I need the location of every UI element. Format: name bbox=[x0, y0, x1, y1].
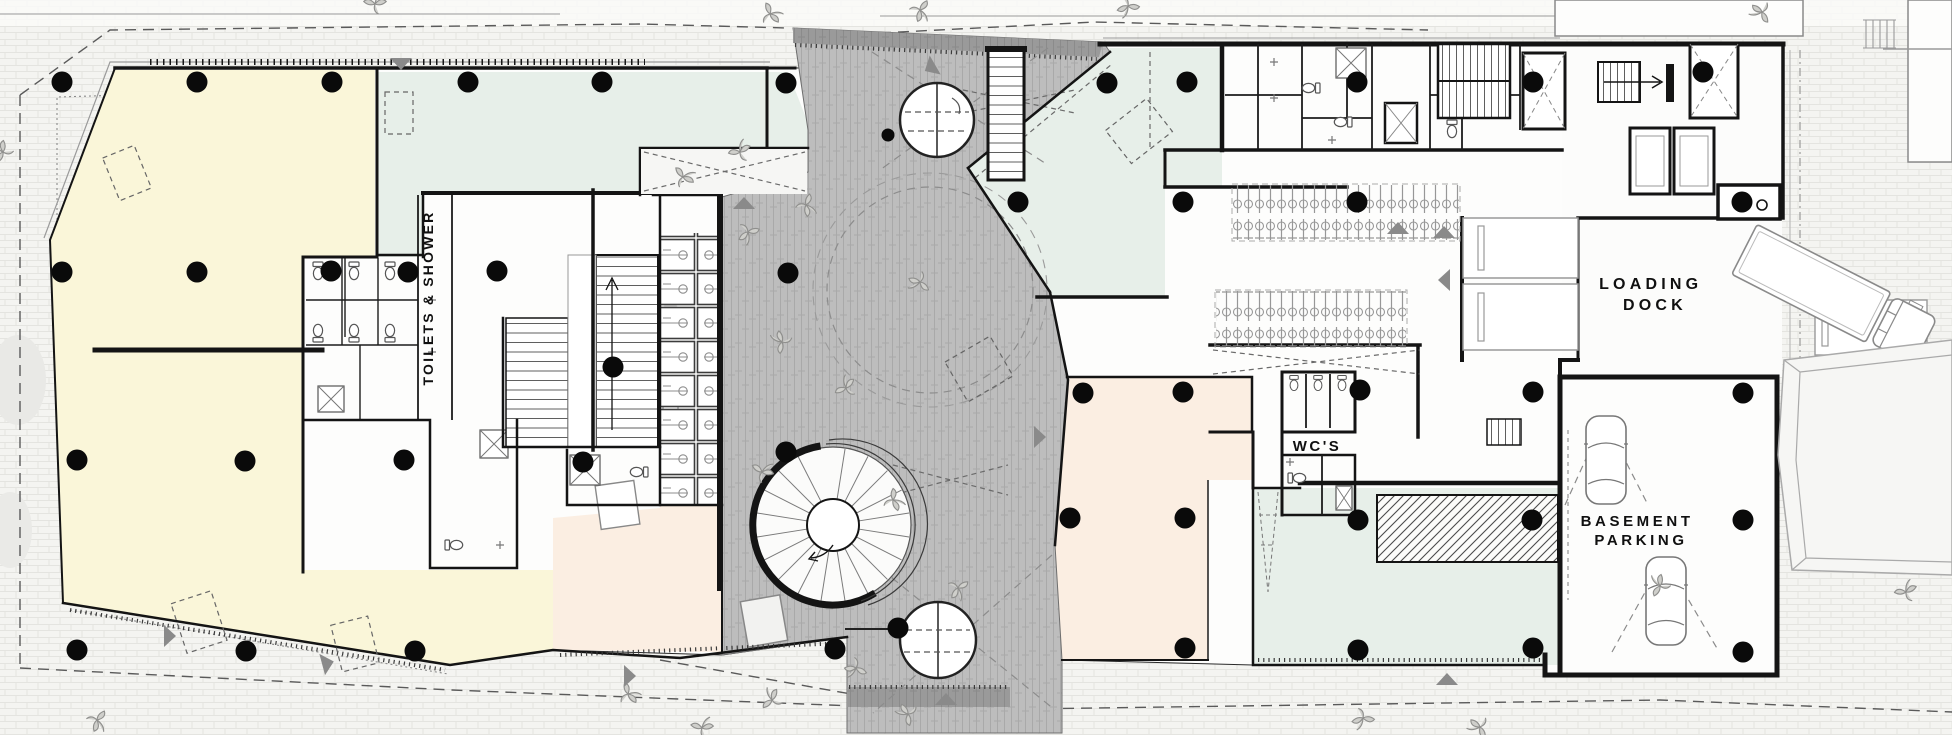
column-dot bbox=[1347, 72, 1368, 93]
label-wcs: WC'S bbox=[1293, 438, 1342, 455]
loading-bay bbox=[1463, 284, 1578, 350]
label-loading: LOADING bbox=[1599, 276, 1702, 293]
column-dot bbox=[398, 262, 419, 283]
column-dot bbox=[1523, 382, 1544, 403]
column-dot bbox=[888, 618, 909, 639]
column-dot bbox=[322, 72, 343, 93]
car bbox=[1584, 416, 1628, 504]
column-dot bbox=[1097, 73, 1118, 94]
column-dot bbox=[1733, 383, 1754, 404]
plaza-pit-cover bbox=[740, 595, 787, 647]
plaza-threshold-band bbox=[847, 687, 1010, 707]
column-dot bbox=[776, 442, 797, 463]
floor-plan-page: LOADING DOCK BASEMENT PARKING bbox=[0, 0, 1952, 735]
column-dot bbox=[405, 641, 426, 662]
column-dot bbox=[67, 640, 88, 661]
adjacent-roof-outline bbox=[1908, 0, 1952, 162]
column-dot bbox=[825, 639, 846, 660]
column-dot bbox=[1175, 508, 1196, 529]
label-dock: DOCK bbox=[1623, 297, 1687, 314]
column-dot bbox=[1175, 638, 1196, 659]
column-dot bbox=[1350, 380, 1371, 401]
column-dot bbox=[52, 72, 73, 93]
column-dot bbox=[1008, 192, 1029, 213]
column-dot bbox=[1732, 192, 1753, 213]
column-dot bbox=[1173, 382, 1194, 403]
column-dot bbox=[321, 261, 342, 282]
column-dot bbox=[1733, 642, 1754, 663]
column-dot bbox=[236, 641, 257, 662]
car-ramp bbox=[1778, 340, 1952, 575]
column-dot bbox=[1348, 640, 1369, 661]
column-dot bbox=[1347, 192, 1368, 213]
label-parking: PARKING bbox=[1594, 532, 1687, 549]
column-dot bbox=[1522, 510, 1543, 531]
vestibule bbox=[641, 149, 807, 194]
stair-north bbox=[988, 50, 1024, 180]
bike-lockers bbox=[661, 233, 719, 505]
column-dot bbox=[235, 451, 256, 472]
column-dot bbox=[776, 73, 797, 94]
column-dot bbox=[487, 261, 508, 282]
column-dot bbox=[1523, 638, 1544, 659]
parking-steps bbox=[1487, 419, 1521, 445]
column-dot-small bbox=[882, 129, 895, 142]
column-dot bbox=[1348, 510, 1369, 531]
loading-bay bbox=[1463, 218, 1578, 278]
column-dot bbox=[52, 262, 73, 283]
column-dot bbox=[1173, 192, 1194, 213]
label-basement: BASEMENT bbox=[1581, 513, 1694, 530]
column-dot bbox=[603, 357, 624, 378]
column-dot bbox=[187, 72, 208, 93]
car bbox=[1644, 557, 1688, 645]
column-dot bbox=[1693, 62, 1714, 83]
column-dot bbox=[778, 263, 799, 284]
column-dot bbox=[1177, 72, 1198, 93]
column-dot bbox=[1073, 383, 1094, 404]
column-dot bbox=[592, 72, 613, 93]
column-dot bbox=[1733, 510, 1754, 531]
label-toilets-shower: TOILETS & SHOWER bbox=[420, 211, 436, 386]
floor-plan-canvas: LOADING DOCK BASEMENT PARKING bbox=[0, 0, 1952, 735]
column-dot bbox=[394, 450, 415, 471]
column-dot bbox=[1060, 508, 1081, 529]
column-dot bbox=[1523, 72, 1544, 93]
column-dot bbox=[187, 262, 208, 283]
zone-pink-lower-centre bbox=[553, 505, 722, 652]
column-dot bbox=[573, 452, 594, 473]
tree-planter-top bbox=[900, 83, 974, 157]
column-dot bbox=[458, 72, 479, 93]
column-dot bbox=[67, 450, 88, 471]
